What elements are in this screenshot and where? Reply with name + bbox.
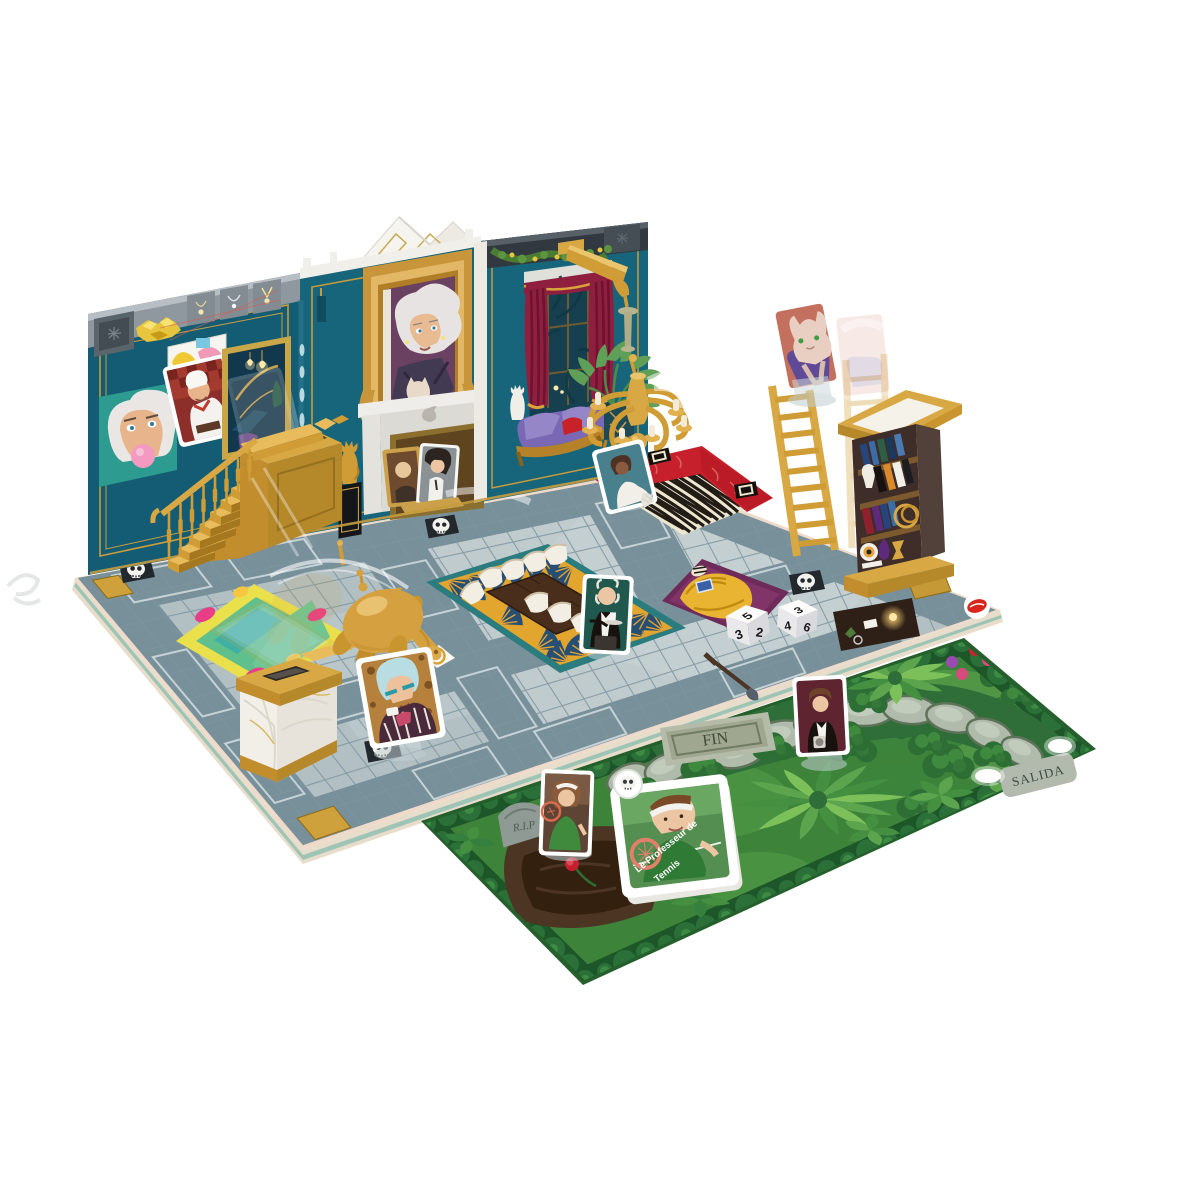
svg-text:FIN: FIN	[701, 729, 729, 749]
